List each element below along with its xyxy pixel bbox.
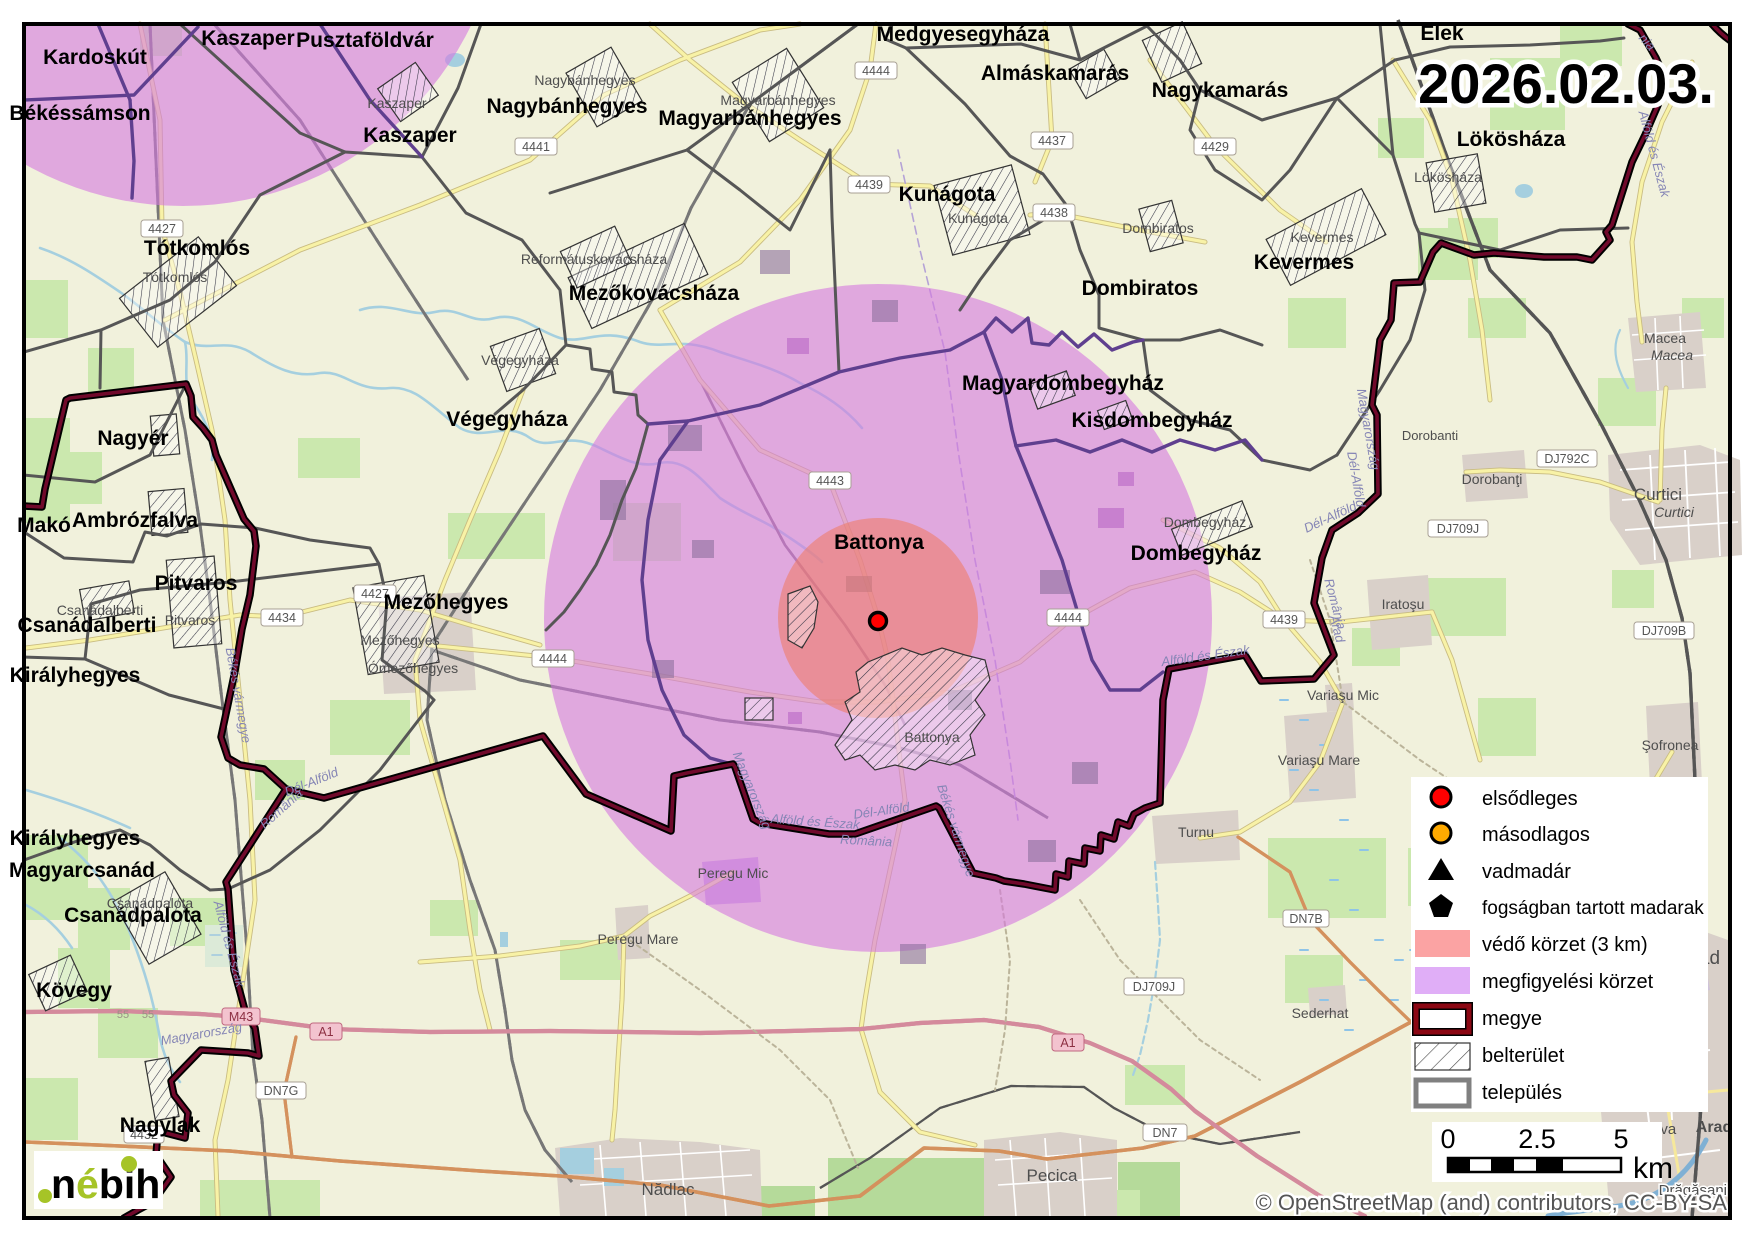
svg-text:Şofronea: Şofronea — [1642, 737, 1699, 753]
svg-text:4441: 4441 — [522, 140, 550, 154]
svg-text:Kunágota: Kunágota — [948, 210, 1008, 226]
svg-text:Magyardombegyház: Magyardombegyház — [962, 372, 1164, 395]
svg-text:Kevermes: Kevermes — [1290, 229, 1353, 245]
svg-text:Mezőkovácsháza: Mezőkovácsháza — [569, 282, 740, 305]
svg-text:település: település — [1482, 1082, 1562, 1104]
svg-text:DN7B: DN7B — [1289, 912, 1322, 926]
svg-text:4443: 4443 — [816, 474, 844, 488]
svg-text:Dorobanţi: Dorobanţi — [1462, 471, 1523, 487]
svg-text:Ómezőhegyes: Ómezőhegyes — [368, 660, 458, 676]
svg-text:4439: 4439 — [1270, 613, 1298, 627]
svg-text:Kardoskút: Kardoskút — [43, 46, 147, 69]
svg-text:belterület: belterület — [1482, 1045, 1565, 1067]
svg-text:megye: megye — [1482, 1008, 1542, 1030]
svg-text:Ambrózfalva: Ambrózfalva — [72, 509, 198, 532]
svg-text:Pitvaros: Pitvaros — [155, 572, 238, 595]
svg-text:Reformátuskovácsháza: Reformátuskovácsháza — [521, 251, 668, 267]
svg-text:Mezőhegyes: Mezőhegyes — [360, 632, 439, 648]
svg-text:nébih: nébih — [51, 1161, 160, 1207]
svg-text:5: 5 — [1613, 1124, 1628, 1154]
svg-text:Variaşu Mare: Variaşu Mare — [1278, 752, 1360, 768]
svg-text:Battonya: Battonya — [834, 531, 924, 554]
svg-text:4444: 4444 — [539, 652, 567, 666]
svg-text:4438: 4438 — [1040, 206, 1068, 220]
svg-text:Variaşu Mic: Variaşu Mic — [1307, 687, 1379, 703]
svg-text:Almáskamarás: Almáskamarás — [981, 62, 1129, 85]
svg-text:4444: 4444 — [1054, 611, 1082, 625]
svg-text:Lökösháza: Lökösháza — [1414, 169, 1482, 185]
svg-text:Pitvaros: Pitvaros — [165, 612, 216, 628]
svg-text:Végegyháza: Végegyháza — [481, 352, 559, 368]
svg-text:Dorobanti: Dorobanti — [1402, 428, 1458, 443]
svg-text:Nagybánhegyes: Nagybánhegyes — [534, 72, 635, 88]
svg-text:Peregu Mic: Peregu Mic — [698, 865, 769, 881]
svg-text:Kövegy: Kövegy — [36, 979, 112, 1002]
svg-text:vadmadár: vadmadár — [1482, 861, 1571, 883]
svg-text:védő körzet (3 km): védő körzet (3 km) — [1482, 934, 1648, 956]
svg-text:Mezőhegyes: Mezőhegyes — [384, 591, 509, 614]
svg-text:Kunágota: Kunágota — [899, 183, 996, 206]
svg-text:Kaszaper: Kaszaper — [363, 124, 456, 147]
svg-text:55: 55 — [117, 1009, 129, 1021]
svg-text:4429: 4429 — [1201, 140, 1229, 154]
svg-text:Medgyesegyháza: Medgyesegyháza — [877, 23, 1050, 46]
svg-text:Magyarbánhegyes: Magyarbánhegyes — [720, 92, 835, 108]
svg-text:Macea: Macea — [1644, 330, 1686, 346]
svg-text:A1: A1 — [1060, 1036, 1075, 1050]
svg-text:km: km — [1633, 1152, 1673, 1185]
svg-text:DJ709J: DJ709J — [1133, 980, 1175, 994]
svg-text:fogságban tartott madarak: fogságban tartott madarak — [1482, 898, 1704, 919]
svg-text:Curtici: Curtici — [1634, 485, 1682, 504]
svg-text:Tótkomlós: Tótkomlós — [144, 237, 250, 260]
svg-text:Curtici: Curtici — [1654, 504, 1695, 520]
svg-text:Dombegyház: Dombegyház — [1131, 542, 1262, 565]
svg-text:Pecica: Pecica — [1026, 1166, 1078, 1185]
svg-text:DJ709J: DJ709J — [1437, 522, 1479, 536]
svg-text:Kaszaper: Kaszaper — [367, 95, 426, 111]
svg-text:Csanádpalota: Csanádpalota — [107, 895, 194, 911]
svg-text:Dombiratos: Dombiratos — [1122, 220, 1194, 236]
svg-text:Békéssámson: Békéssámson — [9, 102, 150, 125]
svg-text:A1: A1 — [318, 1025, 333, 1039]
svg-text:Nagyér: Nagyér — [97, 427, 168, 450]
svg-text:0: 0 — [1440, 1124, 1455, 1154]
svg-text:Iratoşu: Iratoşu — [1382, 596, 1425, 612]
svg-text:2026.02.03.: 2026.02.03. — [1418, 52, 1714, 115]
svg-text:© OpenStreetMap (and) contribu: © OpenStreetMap (and) contributors, CC-B… — [1256, 1190, 1728, 1215]
svg-text:Arad: Arad — [1696, 1119, 1732, 1136]
svg-text:Magyarcsanád: Magyarcsanád — [9, 859, 155, 882]
svg-text:Sederhat: Sederhat — [1292, 1005, 1349, 1021]
svg-text:Magyarbánhegyes: Magyarbánhegyes — [658, 107, 841, 130]
svg-text:Csanádalberti: Csanádalberti — [57, 602, 143, 618]
svg-text:másodlagos: másodlagos — [1482, 824, 1590, 846]
svg-text:DJ709B: DJ709B — [1642, 624, 1686, 638]
svg-text:4434: 4434 — [268, 611, 296, 625]
svg-text:Nădlac: Nădlac — [642, 1180, 695, 1199]
svg-text:2.5: 2.5 — [1518, 1124, 1556, 1154]
svg-text:Pusztaföldvár: Pusztaföldvár — [296, 29, 434, 52]
svg-text:Végegyháza: Végegyháza — [446, 408, 568, 431]
svg-text:megfigyelési körzet: megfigyelési körzet — [1482, 971, 1654, 993]
svg-text:România: România — [840, 832, 893, 850]
svg-text:55: 55 — [142, 1009, 154, 1021]
svg-text:4427: 4427 — [148, 222, 176, 236]
svg-text:DJ792C: DJ792C — [1544, 452, 1589, 466]
svg-text:4444: 4444 — [862, 64, 890, 78]
svg-text:Nagybánhegyes: Nagybánhegyes — [486, 95, 647, 118]
svg-text:4437: 4437 — [1038, 134, 1066, 148]
svg-text:Nagylak: Nagylak — [120, 1114, 201, 1137]
svg-text:Nagykamarás: Nagykamarás — [1152, 79, 1289, 102]
svg-text:4439: 4439 — [855, 178, 883, 192]
svg-text:Királyhegyes: Királyhegyes — [10, 664, 141, 687]
svg-text:Kaszaper: Kaszaper — [201, 27, 294, 50]
svg-text:Macea: Macea — [1651, 347, 1693, 363]
svg-text:Tótkomlós: Tótkomlós — [143, 269, 208, 285]
svg-text:DN7: DN7 — [1152, 1126, 1177, 1140]
svg-text:Dombegyház: Dombegyház — [1164, 514, 1247, 530]
svg-text:elsődleges: elsődleges — [1482, 788, 1578, 810]
svg-text:Dombiratos: Dombiratos — [1082, 277, 1199, 300]
svg-text:Kisdombegyház: Kisdombegyház — [1071, 409, 1232, 432]
svg-text:Kevermes: Kevermes — [1254, 251, 1354, 274]
svg-text:Királyhegyes: Királyhegyes — [10, 827, 141, 850]
svg-text:Turnu: Turnu — [1178, 824, 1214, 840]
svg-text:Battonya: Battonya — [904, 729, 959, 745]
svg-text:Lökösháza: Lökösháza — [1457, 128, 1566, 151]
svg-text:DN7G: DN7G — [264, 1084, 299, 1098]
svg-text:Peregu Mare: Peregu Mare — [598, 931, 679, 947]
